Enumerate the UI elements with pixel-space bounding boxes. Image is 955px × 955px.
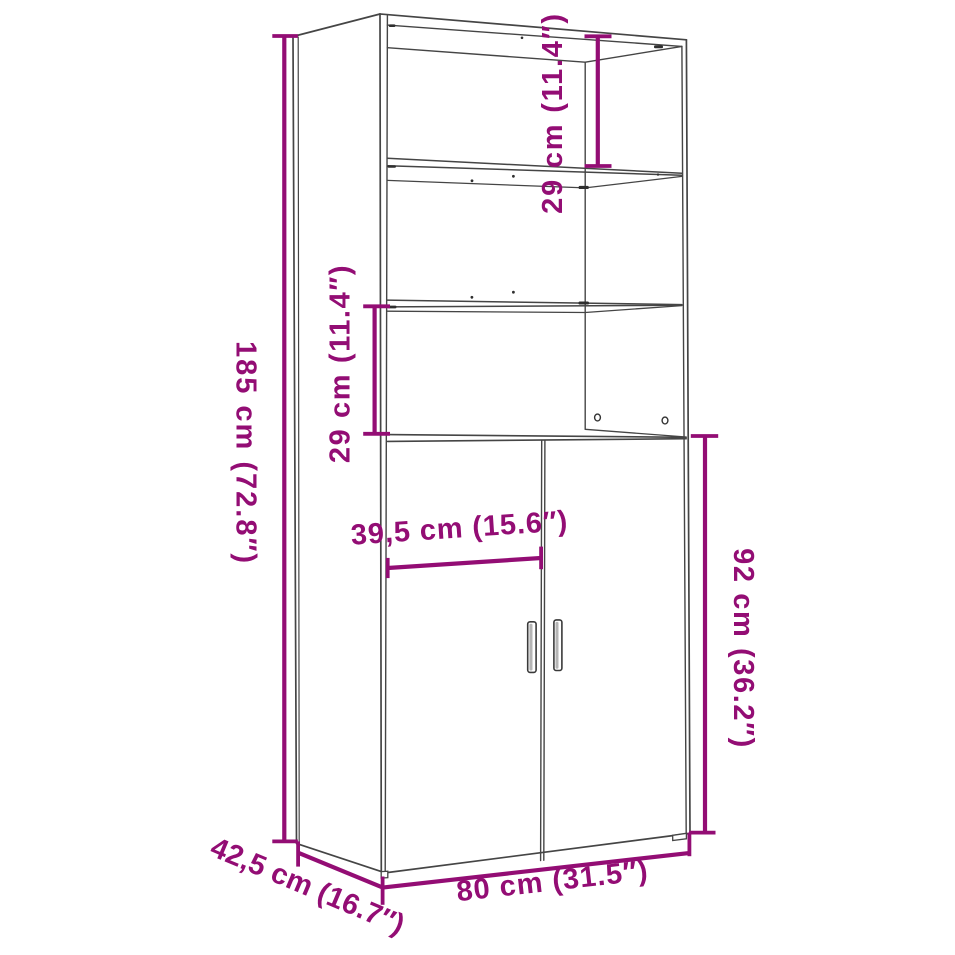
svg-text:29 cm (11.4″): 29 cm (11.4″) [325, 264, 357, 463]
svg-text:29 cm (11.4″): 29 cm (11.4″) [537, 12, 569, 214]
svg-text:92 cm (36.2″): 92 cm (36.2″) [727, 548, 759, 749]
svg-text:185 cm (72.8″): 185 cm (72.8″) [230, 341, 262, 565]
